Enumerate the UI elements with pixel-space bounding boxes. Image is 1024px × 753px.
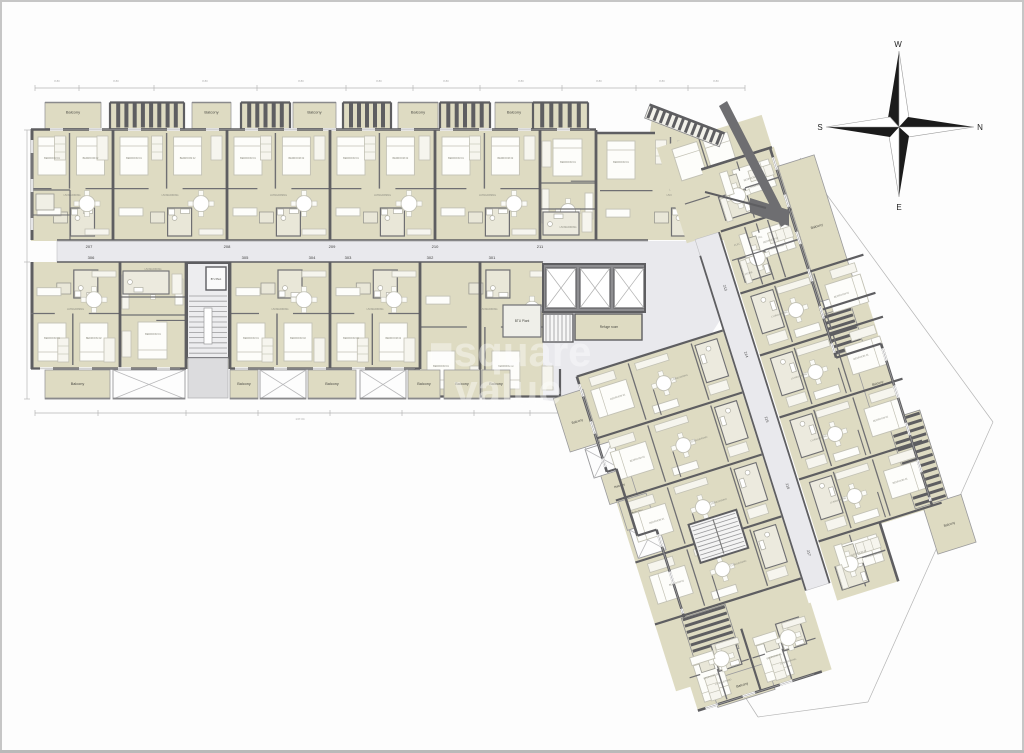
svg-text:BEDROOM 01: BEDROOM 01	[240, 157, 256, 160]
svg-text:Balcony: Balcony	[307, 110, 321, 115]
svg-text:LIVING/DINING: LIVING/DINING	[560, 226, 577, 229]
svg-text:BTU Plant: BTU Plant	[211, 278, 222, 281]
svg-text:BEDROOM 01: BEDROOM 01	[448, 157, 464, 160]
svg-text:207: 207	[86, 244, 93, 249]
svg-text:211: 211	[537, 244, 544, 249]
svg-text:Balcony: Balcony	[507, 110, 521, 115]
svg-text:8.80: 8.80	[113, 79, 119, 83]
svg-text:LIVING/DINING: LIVING/DINING	[479, 194, 496, 197]
svg-text:BEDROOM 01: BEDROOM 01	[126, 157, 142, 160]
svg-text:BTU Plant: BTU Plant	[515, 319, 530, 323]
svg-text:8.80: 8.80	[202, 79, 208, 83]
svg-text:BEDROOM 01: BEDROOM 01	[44, 337, 60, 340]
svg-text:302: 302	[427, 255, 434, 260]
svg-text:LIVING/DINING: LIVING/DINING	[270, 194, 287, 197]
svg-text:303: 303	[345, 255, 352, 260]
svg-text:BEDROOM 01: BEDROOM 01	[560, 161, 576, 164]
svg-text:Balcony: Balcony	[417, 382, 431, 386]
svg-text:Refuge room: Refuge room	[600, 325, 619, 329]
svg-text:8.80: 8.80	[713, 79, 719, 83]
svg-text:BEDROOM 02: BEDROOM 02	[83, 157, 99, 160]
svg-text:LIVING/DINING: LIVING/DINING	[367, 308, 384, 311]
svg-text:value: value	[454, 366, 561, 413]
svg-text:BEDROOM 02: BEDROOM 02	[385, 337, 401, 340]
svg-text:209: 209	[329, 244, 336, 249]
svg-text:8.80: 8.80	[659, 79, 665, 83]
svg-text:BEDROOM 02: BEDROOM 02	[86, 337, 102, 340]
svg-text:8.80: 8.80	[596, 79, 602, 83]
svg-text:208: 208	[224, 244, 231, 249]
svg-text:8.80: 8.80	[376, 79, 382, 83]
svg-text:8.80: 8.80	[518, 79, 524, 83]
svg-text:LIVING/DINING: LIVING/DINING	[481, 308, 498, 311]
svg-text:S: S	[817, 123, 822, 132]
svg-text:BEDROOM 01: BEDROOM 01	[145, 333, 161, 336]
svg-text:N: N	[977, 123, 983, 132]
svg-text:Balcony: Balcony	[237, 382, 251, 386]
svg-text:8.80: 8.80	[298, 79, 304, 83]
svg-text:LIVING/DINING: LIVING/DINING	[272, 308, 289, 311]
svg-text:BEDROOM 02: BEDROOM 02	[290, 337, 306, 340]
svg-text:BEDROOM 02: BEDROOM 02	[393, 157, 409, 160]
svg-text:Balcony: Balcony	[325, 382, 339, 386]
svg-text:BEDROOM 01: BEDROOM 01	[613, 161, 629, 164]
svg-text:BEDROOM 01: BEDROOM 01	[243, 337, 259, 340]
svg-text:210: 210	[432, 244, 439, 249]
svg-text:BEDROOM 02: BEDROOM 02	[498, 157, 514, 160]
svg-text:BEDROOM 02: BEDROOM 02	[289, 157, 305, 160]
svg-text:LIVING/DINING: LIVING/DINING	[162, 194, 179, 197]
svg-text:BEDROOM 01: BEDROOM 01	[44, 157, 60, 160]
svg-text:304: 304	[309, 255, 316, 260]
svg-text:E: E	[896, 203, 901, 212]
svg-text:8.80: 8.80	[54, 79, 60, 83]
svg-text:LIVING/DINING: LIVING/DINING	[64, 194, 81, 197]
svg-text:W: W	[894, 40, 902, 49]
svg-text:BEDROOM 01: BEDROOM 01	[343, 157, 359, 160]
svg-text:Balcony: Balcony	[204, 110, 218, 115]
svg-text:137.04: 137.04	[295, 417, 305, 421]
svg-text:306: 306	[88, 255, 95, 260]
svg-text:BEDROOM 01: BEDROOM 01	[343, 337, 359, 340]
svg-text:BEDROOM 02: BEDROOM 02	[180, 157, 196, 160]
svg-text:Balcony: Balcony	[71, 382, 85, 386]
svg-text:LIVING/DINING: LIVING/DINING	[145, 268, 162, 271]
svg-text:8.80: 8.80	[443, 79, 449, 83]
svg-text:LIVING/DINING: LIVING/DINING	[67, 308, 84, 311]
svg-text:305: 305	[242, 255, 249, 260]
svg-text:301: 301	[489, 255, 496, 260]
svg-text:LIVING/DINING: LIVING/DINING	[374, 194, 391, 197]
svg-text:Balcony: Balcony	[411, 110, 425, 115]
svg-text:Balcony: Balcony	[66, 110, 80, 115]
